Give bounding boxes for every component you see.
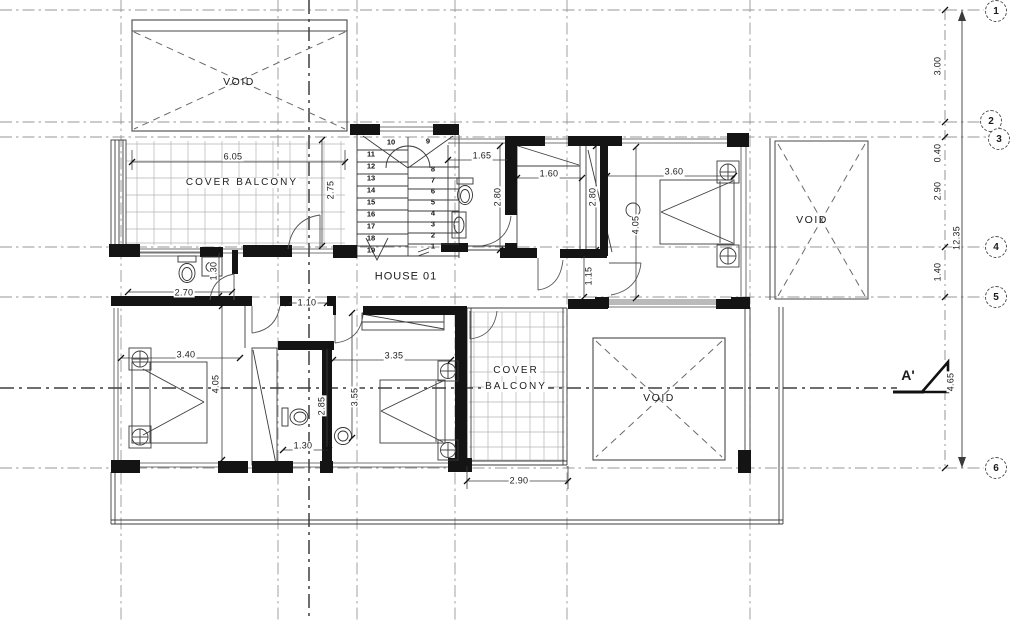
toilet-mid-bath [282, 408, 308, 426]
dim-bath-mid-width: 1.30 [293, 442, 314, 451]
partition-lines [111, 135, 783, 524]
stair-step-number: 13 [367, 174, 375, 182]
dim-bedroom3-width: 3.35 [384, 352, 405, 361]
dim-bath-mid-depth: 2.85 [318, 396, 327, 417]
dim-bedroom1-width: 3.60 [664, 168, 685, 177]
dim-right-chain: 3.00 [934, 56, 943, 77]
stair-step-number: 11 [367, 150, 375, 158]
dim-right-chain: 2.90 [934, 181, 943, 202]
stair-step-number: 10 [387, 138, 395, 146]
grid-bubble-3: 3 [988, 128, 1010, 150]
dim-balcony-top-depth: 2.75 [327, 180, 336, 201]
stair-step-number: 18 [367, 234, 375, 242]
grid-bubble-6: 6 [985, 457, 1007, 479]
door-hall [538, 258, 563, 290]
stair-step-number: 16 [367, 210, 375, 218]
dim-bath-top-width: 1.65 [472, 152, 493, 161]
stair-step-number: 4 [431, 209, 435, 217]
void-top-left-label: VOID [222, 77, 256, 88]
door-bath-top [481, 216, 511, 246]
stair-step-number: 3 [431, 220, 435, 228]
stair-step-number: 12 [367, 162, 375, 170]
dim-right-chain: 4.65 [947, 372, 956, 393]
house-label: HOUSE 01 [374, 272, 438, 283]
door-balcony-top [288, 215, 320, 249]
toilet-left-bath [178, 256, 196, 283]
dim-bath-left-width: 2.70 [174, 289, 195, 298]
bed-bedroom2 [129, 348, 207, 448]
dim-bath-top-depth: 2.80 [494, 187, 503, 208]
void-bottom-right-label: VOID [642, 393, 676, 404]
dim-wardrobe-depth: 2.80 [589, 187, 598, 208]
dim-bedroom1-depth: 4.05 [632, 215, 641, 236]
dim-balcony-top-width: 6.05 [223, 153, 244, 162]
stair-step-number: 15 [367, 198, 375, 206]
stair-step-number: 9 [426, 137, 430, 145]
stair-step-number: 5 [431, 198, 435, 206]
stair-step-number: 19 [367, 246, 375, 254]
dim-bath-left-depth: 1.30 [210, 261, 219, 282]
dim-right-chain: 0.40 [934, 143, 943, 164]
basin-mid [335, 428, 352, 445]
grid-lines [0, 0, 988, 620]
dim-bedroom3-depth: 3.55 [351, 387, 360, 408]
balcony-top-label: COVER BALCONY [185, 178, 299, 188]
stair-step-number: 6 [431, 187, 435, 195]
door-bedroom3 [335, 315, 363, 343]
dim-right-total: 12.35 [953, 225, 962, 251]
dim-bedroom2-depth: 4.05 [212, 374, 221, 395]
stair-step-number: 17 [367, 222, 375, 230]
floor-plan-canvas: VOID COVER BALCONY VOID VOID COVER BALCO… [0, 0, 1024, 620]
dim-right-chain: 1.40 [934, 262, 943, 283]
bed-bedroom3 [380, 361, 458, 460]
stair-step-number: 7 [431, 176, 435, 184]
dim-balcony-bottom-width: 2.90 [509, 477, 530, 486]
balcony-bottom-label-2: BALCONY [484, 382, 548, 392]
balcony-bottom-label-1: COVER [492, 366, 540, 376]
floorplan-linework [0, 0, 1024, 620]
stair-step-number: 14 [367, 186, 375, 194]
dim-hall-niche: 1.15 [585, 266, 594, 287]
dim-hall-width: 1.10 [297, 299, 318, 308]
grid-bubble-4: 4 [985, 236, 1007, 258]
section-label: A' [900, 368, 915, 382]
dim-bedroom2-width: 3.40 [176, 351, 197, 360]
stair-step-number: 1 [431, 242, 435, 250]
grid-bubble-5: 5 [985, 286, 1007, 308]
door-bedroom2 [252, 306, 280, 333]
dim-wardrobe-width: 1.60 [539, 170, 560, 179]
bed-bedroom1 [660, 161, 739, 267]
void-top-right-label: VOID [795, 215, 829, 226]
stair-step-number: 8 [431, 165, 435, 173]
grid-bubble-1: 1 [985, 0, 1007, 22]
stair-step-number: 2 [431, 231, 435, 239]
